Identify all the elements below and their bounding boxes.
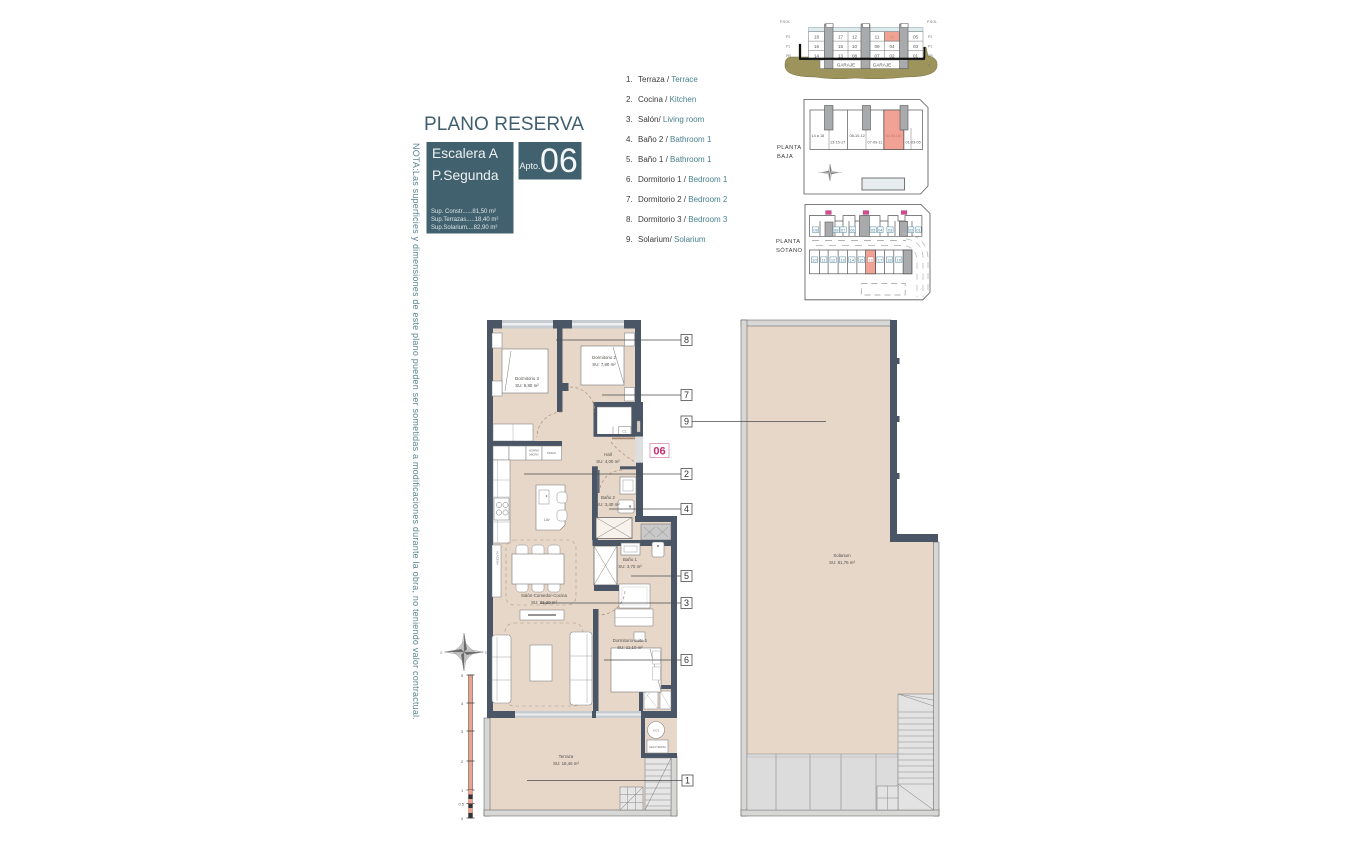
svg-text:5: 5 [684, 571, 689, 581]
svg-text:02-04-06: 02-04-06 [886, 134, 901, 138]
svg-text:Baño 1: Baño 1 [623, 557, 637, 562]
svg-text:3.: 3. [626, 115, 633, 124]
svg-text:Salón/ Living room: Salón/ Living room [638, 115, 705, 124]
svg-text:Dormitorio 2: Dormitorio 2 [592, 355, 616, 360]
svg-text:2.: 2. [626, 95, 633, 104]
svg-text:13: 13 [838, 53, 844, 58]
svg-text:CL: CL [622, 430, 626, 434]
svg-text:14: 14 [814, 53, 820, 58]
svg-text:6: 6 [684, 655, 689, 665]
svg-text:3: 3 [684, 598, 689, 608]
svg-text:P2: P2 [928, 35, 932, 39]
svg-text:11: 11 [875, 35, 880, 40]
svg-text:08: 08 [852, 53, 858, 58]
svg-text:9.: 9. [626, 235, 633, 244]
svg-text:Sup.Terrazas.....18,40 m²: Sup.Terrazas.....18,40 m² [431, 217, 498, 223]
svg-text:PLANO RESERVA: PLANO RESERVA [424, 114, 584, 135]
svg-text:SU: 3,70 m²: SU: 3,70 m² [618, 564, 642, 569]
svg-text:5.: 5. [626, 155, 633, 164]
svg-text:P.Segunda: P.Segunda [432, 168, 499, 183]
svg-text:08-10-12: 08-10-12 [850, 134, 865, 138]
svg-text:12: 12 [831, 258, 836, 263]
svg-text:ACS: ACS [653, 729, 659, 733]
svg-text:BAJA: BAJA [777, 154, 793, 160]
svg-text:01-03-05: 01-03-05 [906, 141, 921, 145]
svg-text:Dormitorio 2 / Bedroom 2: Dormitorio 2 / Bedroom 2 [638, 195, 728, 204]
svg-text:18: 18 [814, 35, 820, 40]
svg-text:03: 03 [888, 228, 893, 233]
svg-text:P.SOL: P.SOL [780, 20, 790, 24]
svg-text:8.: 8. [626, 215, 633, 224]
svg-text:12: 12 [852, 35, 858, 40]
svg-text:Sup. Constr......81,50 m²: Sup. Constr......81,50 m² [431, 209, 496, 215]
svg-text:7: 7 [684, 390, 689, 400]
svg-text:P1: P1 [786, 45, 790, 49]
svg-text:PLANTA: PLANTA [776, 239, 801, 245]
svg-text:09: 09 [813, 228, 818, 233]
svg-text:07: 07 [841, 228, 846, 233]
svg-text:08: 08 [834, 228, 839, 233]
svg-text:Dormitorio 3: Dormitorio 3 [515, 376, 539, 381]
svg-text:8: 8 [684, 335, 689, 345]
svg-text:Baño 1 / Bathroom 1: Baño 1 / Bathroom 1 [638, 155, 712, 164]
svg-text:06: 06 [540, 142, 578, 180]
svg-text:07: 07 [874, 53, 880, 58]
svg-text:10: 10 [852, 44, 858, 49]
svg-text:Solarium: Solarium [833, 553, 851, 558]
svg-text:4.: 4. [626, 135, 633, 144]
svg-text:Solarium/ Solarium: Solarium/ Solarium [638, 235, 706, 244]
svg-text:1.: 1. [626, 75, 633, 84]
svg-text:06: 06 [653, 446, 665, 458]
svg-text:03: 03 [913, 44, 919, 49]
svg-text:05: 05 [871, 228, 876, 233]
svg-text:Baño 2 / Bathroom 1: Baño 2 / Bathroom 1 [638, 135, 712, 144]
svg-text:7.: 7. [626, 195, 633, 204]
svg-text:0.5: 0.5 [459, 802, 465, 807]
svg-text:Escalera A: Escalera A [432, 146, 499, 161]
svg-text:PB: PB [786, 54, 791, 58]
svg-text:14: 14 [850, 258, 855, 263]
svg-text:Dormitorio 1 / Bedroom 1: Dormitorio 1 / Bedroom 1 [638, 175, 728, 184]
svg-text:14 a 18: 14 a 18 [812, 134, 825, 138]
svg-text:PB: PB [928, 54, 933, 58]
svg-text:SU: 9,80 m²: SU: 9,80 m² [515, 383, 539, 388]
svg-text:05: 05 [913, 35, 919, 40]
svg-text:ALACENA: ALACENA [496, 551, 500, 565]
svg-text:SU: 32,20 m²: SU: 32,20 m² [531, 600, 557, 605]
svg-text:01: 01 [913, 53, 919, 58]
svg-text:9: 9 [684, 417, 689, 427]
svg-text:6.: 6. [626, 175, 633, 184]
svg-text:FRIGO: FRIGO [547, 451, 557, 455]
svg-text:01: 01 [916, 228, 921, 233]
svg-text:Dormitorio suite 1: Dormitorio suite 1 [613, 638, 648, 643]
svg-text:04: 04 [878, 228, 883, 233]
svg-text:2: 2 [684, 469, 689, 479]
svg-text:Terraza / Terrace: Terraza / Terrace [638, 75, 698, 84]
svg-text:Dormitorio 3 / Bedroom 3: Dormitorio 3 / Bedroom 3 [638, 215, 728, 224]
svg-text:MICRO: MICRO [529, 453, 539, 457]
svg-text:15: 15 [859, 258, 864, 263]
svg-text:17: 17 [838, 35, 844, 40]
svg-text:SU: 11,10 m²: SU: 11,10 m² [617, 645, 643, 650]
svg-text:GARAJE: GARAJE [837, 63, 855, 68]
svg-text:Baño 2: Baño 2 [601, 495, 615, 500]
svg-text:SU: 18,46 m²: SU: 18,46 m² [553, 761, 579, 766]
svg-text:P.SOL: P.SOL [927, 20, 937, 24]
svg-text:10: 10 [812, 258, 817, 263]
svg-text:AEROTERMIA: AEROTERMIA [649, 745, 666, 749]
svg-text:SU: 81,76 m²: SU: 81,76 m² [829, 560, 855, 565]
svg-text:16: 16 [868, 258, 873, 263]
svg-text:02: 02 [909, 228, 914, 233]
svg-text:02: 02 [889, 53, 895, 58]
svg-text:18: 18 [887, 258, 892, 263]
svg-text:Terraza: Terraza [559, 754, 574, 759]
svg-text:17: 17 [878, 258, 883, 263]
svg-text:P1: P1 [928, 45, 932, 49]
svg-text:SÓTANO: SÓTANO [776, 247, 803, 254]
svg-text:06: 06 [850, 228, 855, 233]
svg-text:13: 13 [840, 258, 845, 263]
svg-text:P2: P2 [786, 35, 790, 39]
svg-text:SU: 4,00 m²: SU: 4,00 m² [596, 459, 620, 464]
svg-text:15: 15 [838, 44, 844, 49]
svg-text:Salón-Comedor-Cocina: Salón-Comedor-Cocina [521, 593, 567, 598]
svg-text:Hall: Hall [604, 452, 612, 457]
svg-text:19: 19 [896, 258, 901, 263]
svg-text:Sup.Solarium....82,90 m²: Sup.Solarium....82,90 m² [431, 225, 497, 231]
svg-text:SU: 7,80 m²: SU: 7,80 m² [592, 362, 616, 367]
svg-text:04: 04 [889, 44, 895, 49]
svg-text:GARAJE: GARAJE [873, 63, 891, 68]
svg-text:07-09-11: 07-09-11 [868, 141, 883, 145]
svg-text:09: 09 [874, 44, 880, 49]
svg-text:1: 1 [685, 776, 690, 786]
svg-text:4: 4 [684, 504, 689, 514]
svg-text:Apto.: Apto. [520, 161, 541, 171]
svg-text:06: 06 [889, 35, 895, 40]
svg-text:13-15-17: 13-15-17 [830, 141, 845, 145]
svg-text:SU: 3,40 m²: SU: 3,40 m² [596, 502, 620, 507]
svg-text:NOTA:Las superficies y dimensi: NOTA:Las superficies y dimensiones de es… [411, 143, 421, 720]
svg-text:16: 16 [814, 44, 820, 49]
svg-text:LAV: LAV [544, 518, 551, 522]
svg-text:Cocina / Kitchen: Cocina / Kitchen [638, 95, 696, 104]
svg-text:PLANTA: PLANTA [777, 145, 802, 151]
